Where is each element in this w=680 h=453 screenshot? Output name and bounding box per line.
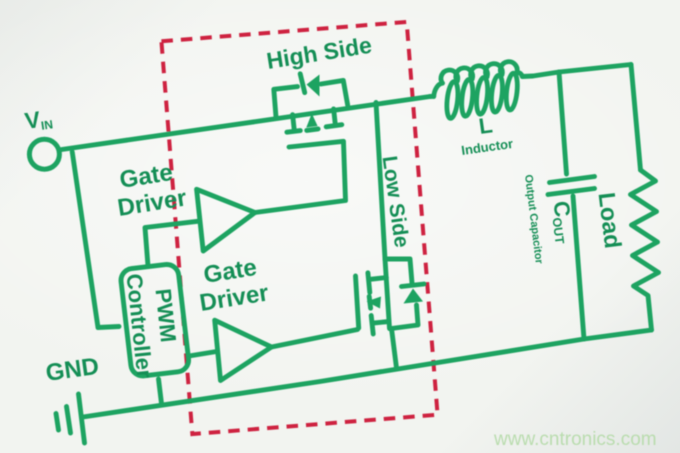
svg-text:PWM: PWM	[151, 287, 181, 343]
svg-text:Inductor: Inductor	[460, 136, 514, 158]
svg-text:Controller: Controller	[122, 272, 158, 380]
svg-text:Load: Load	[594, 191, 627, 250]
svg-text:VIN: VIN	[23, 104, 54, 135]
svg-text:www.cntronics.com: www.cntronics.com	[493, 429, 657, 450]
svg-text:L: L	[477, 112, 494, 139]
svg-text:Output Capacitor: Output Capacitor	[522, 174, 545, 265]
svg-text:High Side: High Side	[265, 32, 374, 74]
svg-text:GND: GND	[44, 353, 101, 387]
